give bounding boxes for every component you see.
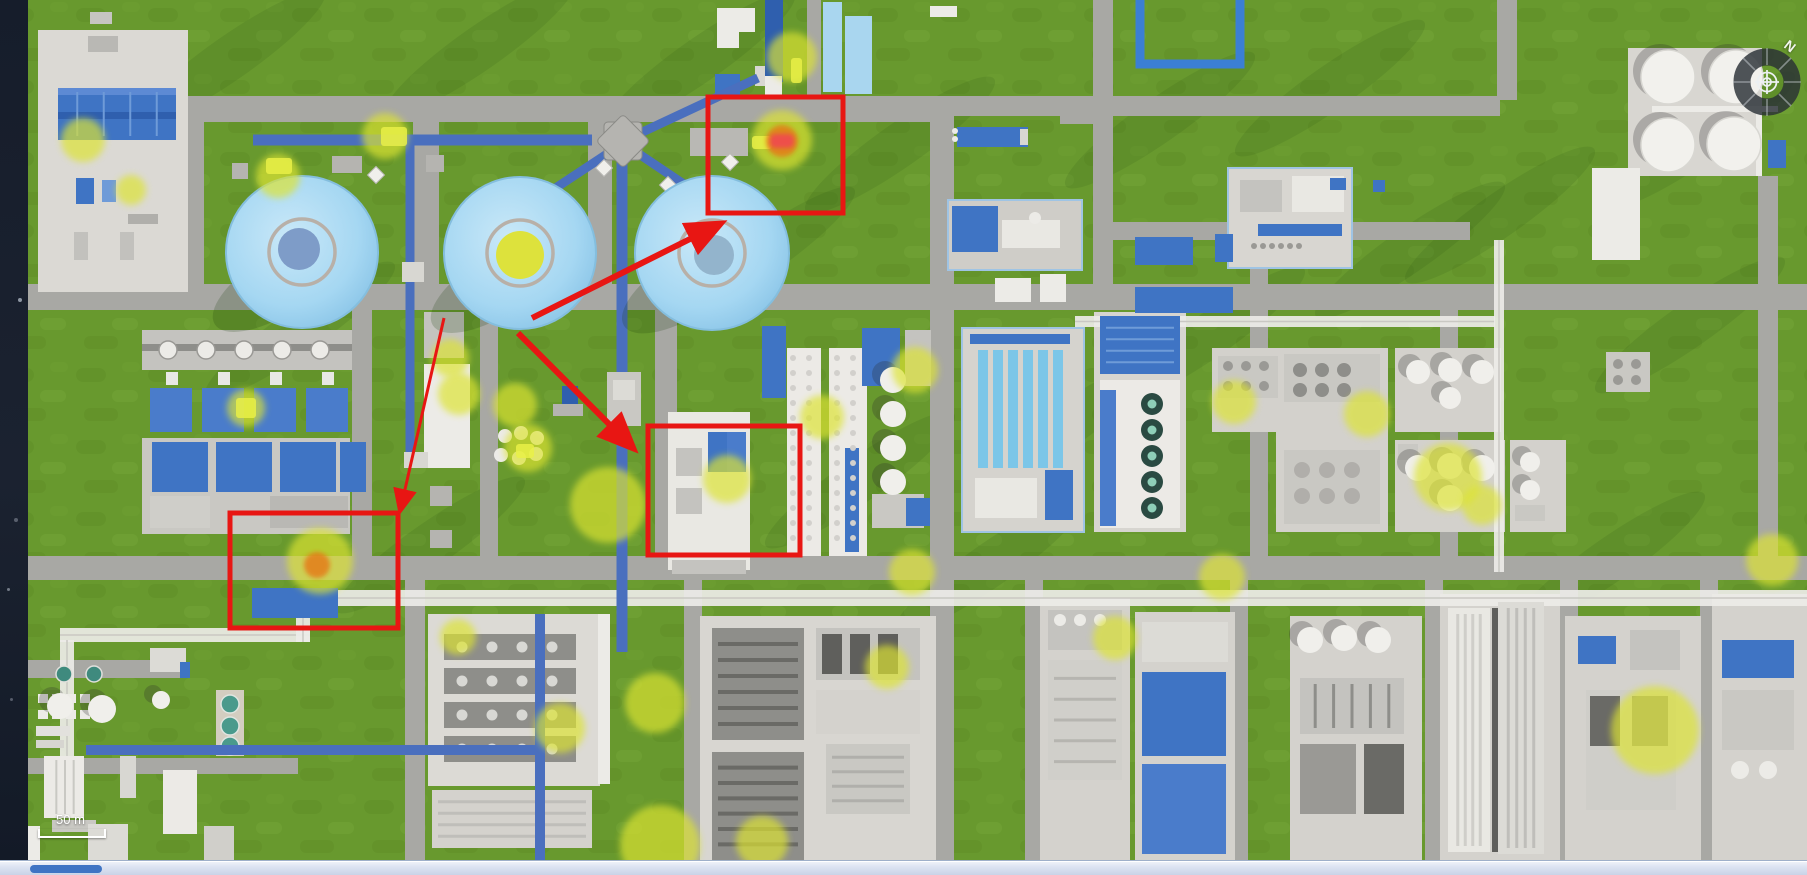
background-dot: [7, 588, 10, 591]
compass-rose-icon: [1729, 44, 1805, 120]
scale-bar-line: [38, 829, 106, 838]
left-panel-edge: [0, 0, 28, 862]
map-canvas[interactable]: [0, 0, 1807, 875]
background-dot: [18, 298, 22, 302]
scrollbar-thumb[interactable]: [30, 865, 102, 873]
horizontal-scrollbar[interactable]: [0, 860, 1807, 875]
background-dot: [10, 698, 13, 701]
spherical-gas-tanks: [199, 176, 789, 351]
scale-bar: 50 m: [38, 812, 106, 838]
scale-bar-label: 50 m: [56, 812, 106, 827]
compass-control[interactable]: N: [1729, 44, 1805, 120]
app-window: N 50 m: [0, 0, 1807, 875]
background-dot: [14, 518, 18, 522]
